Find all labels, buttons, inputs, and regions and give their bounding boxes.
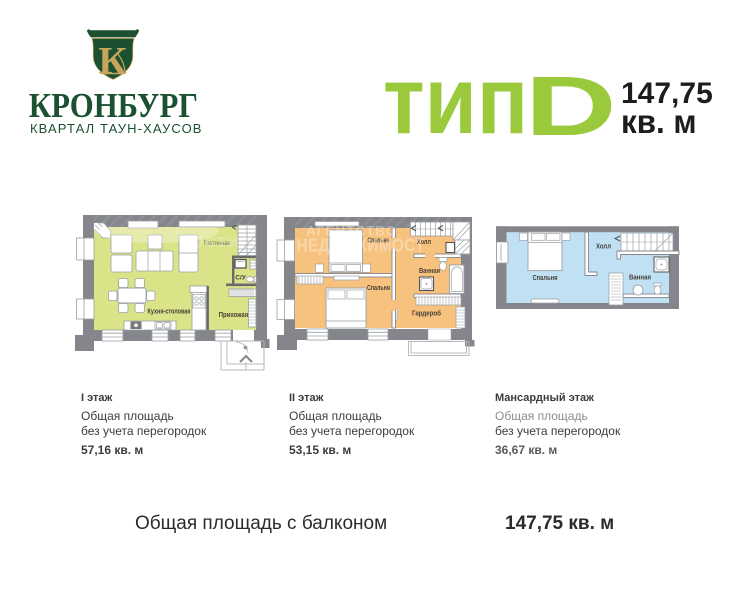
svg-text:Спальня: Спальня (533, 275, 558, 282)
svg-text:НЕДВИЖИМОСТ: НЕДВИЖИМОСТ (297, 235, 426, 256)
svg-text:Кухня-столовая: Кухня-столовая (148, 309, 191, 316)
svg-text:Ванная: Ванная (419, 268, 440, 275)
svg-text:Холл: Холл (596, 244, 611, 251)
svg-text:Гардероб: Гардероб (412, 310, 442, 318)
svg-text:Ванная: Ванная (629, 275, 651, 282)
svg-text:Спальня: Спальня (367, 285, 390, 292)
svg-text:С/У: С/У (235, 275, 246, 282)
svg-text:Прихожая: Прихожая (219, 312, 249, 319)
svg-text:ОСТИ: ОСТИ (192, 234, 240, 251)
